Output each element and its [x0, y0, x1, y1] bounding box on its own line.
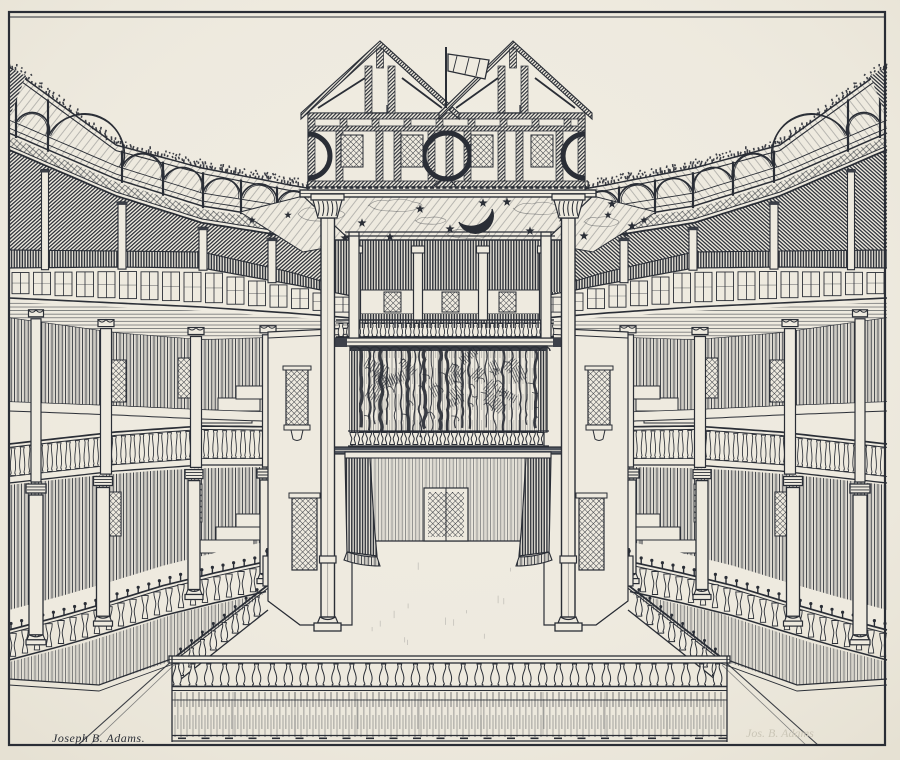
svg-text:Jos. B. Adams: Jos. B. Adams: [746, 726, 814, 740]
svg-text:Joseph B. Adams.: Joseph B. Adams.: [52, 731, 145, 745]
